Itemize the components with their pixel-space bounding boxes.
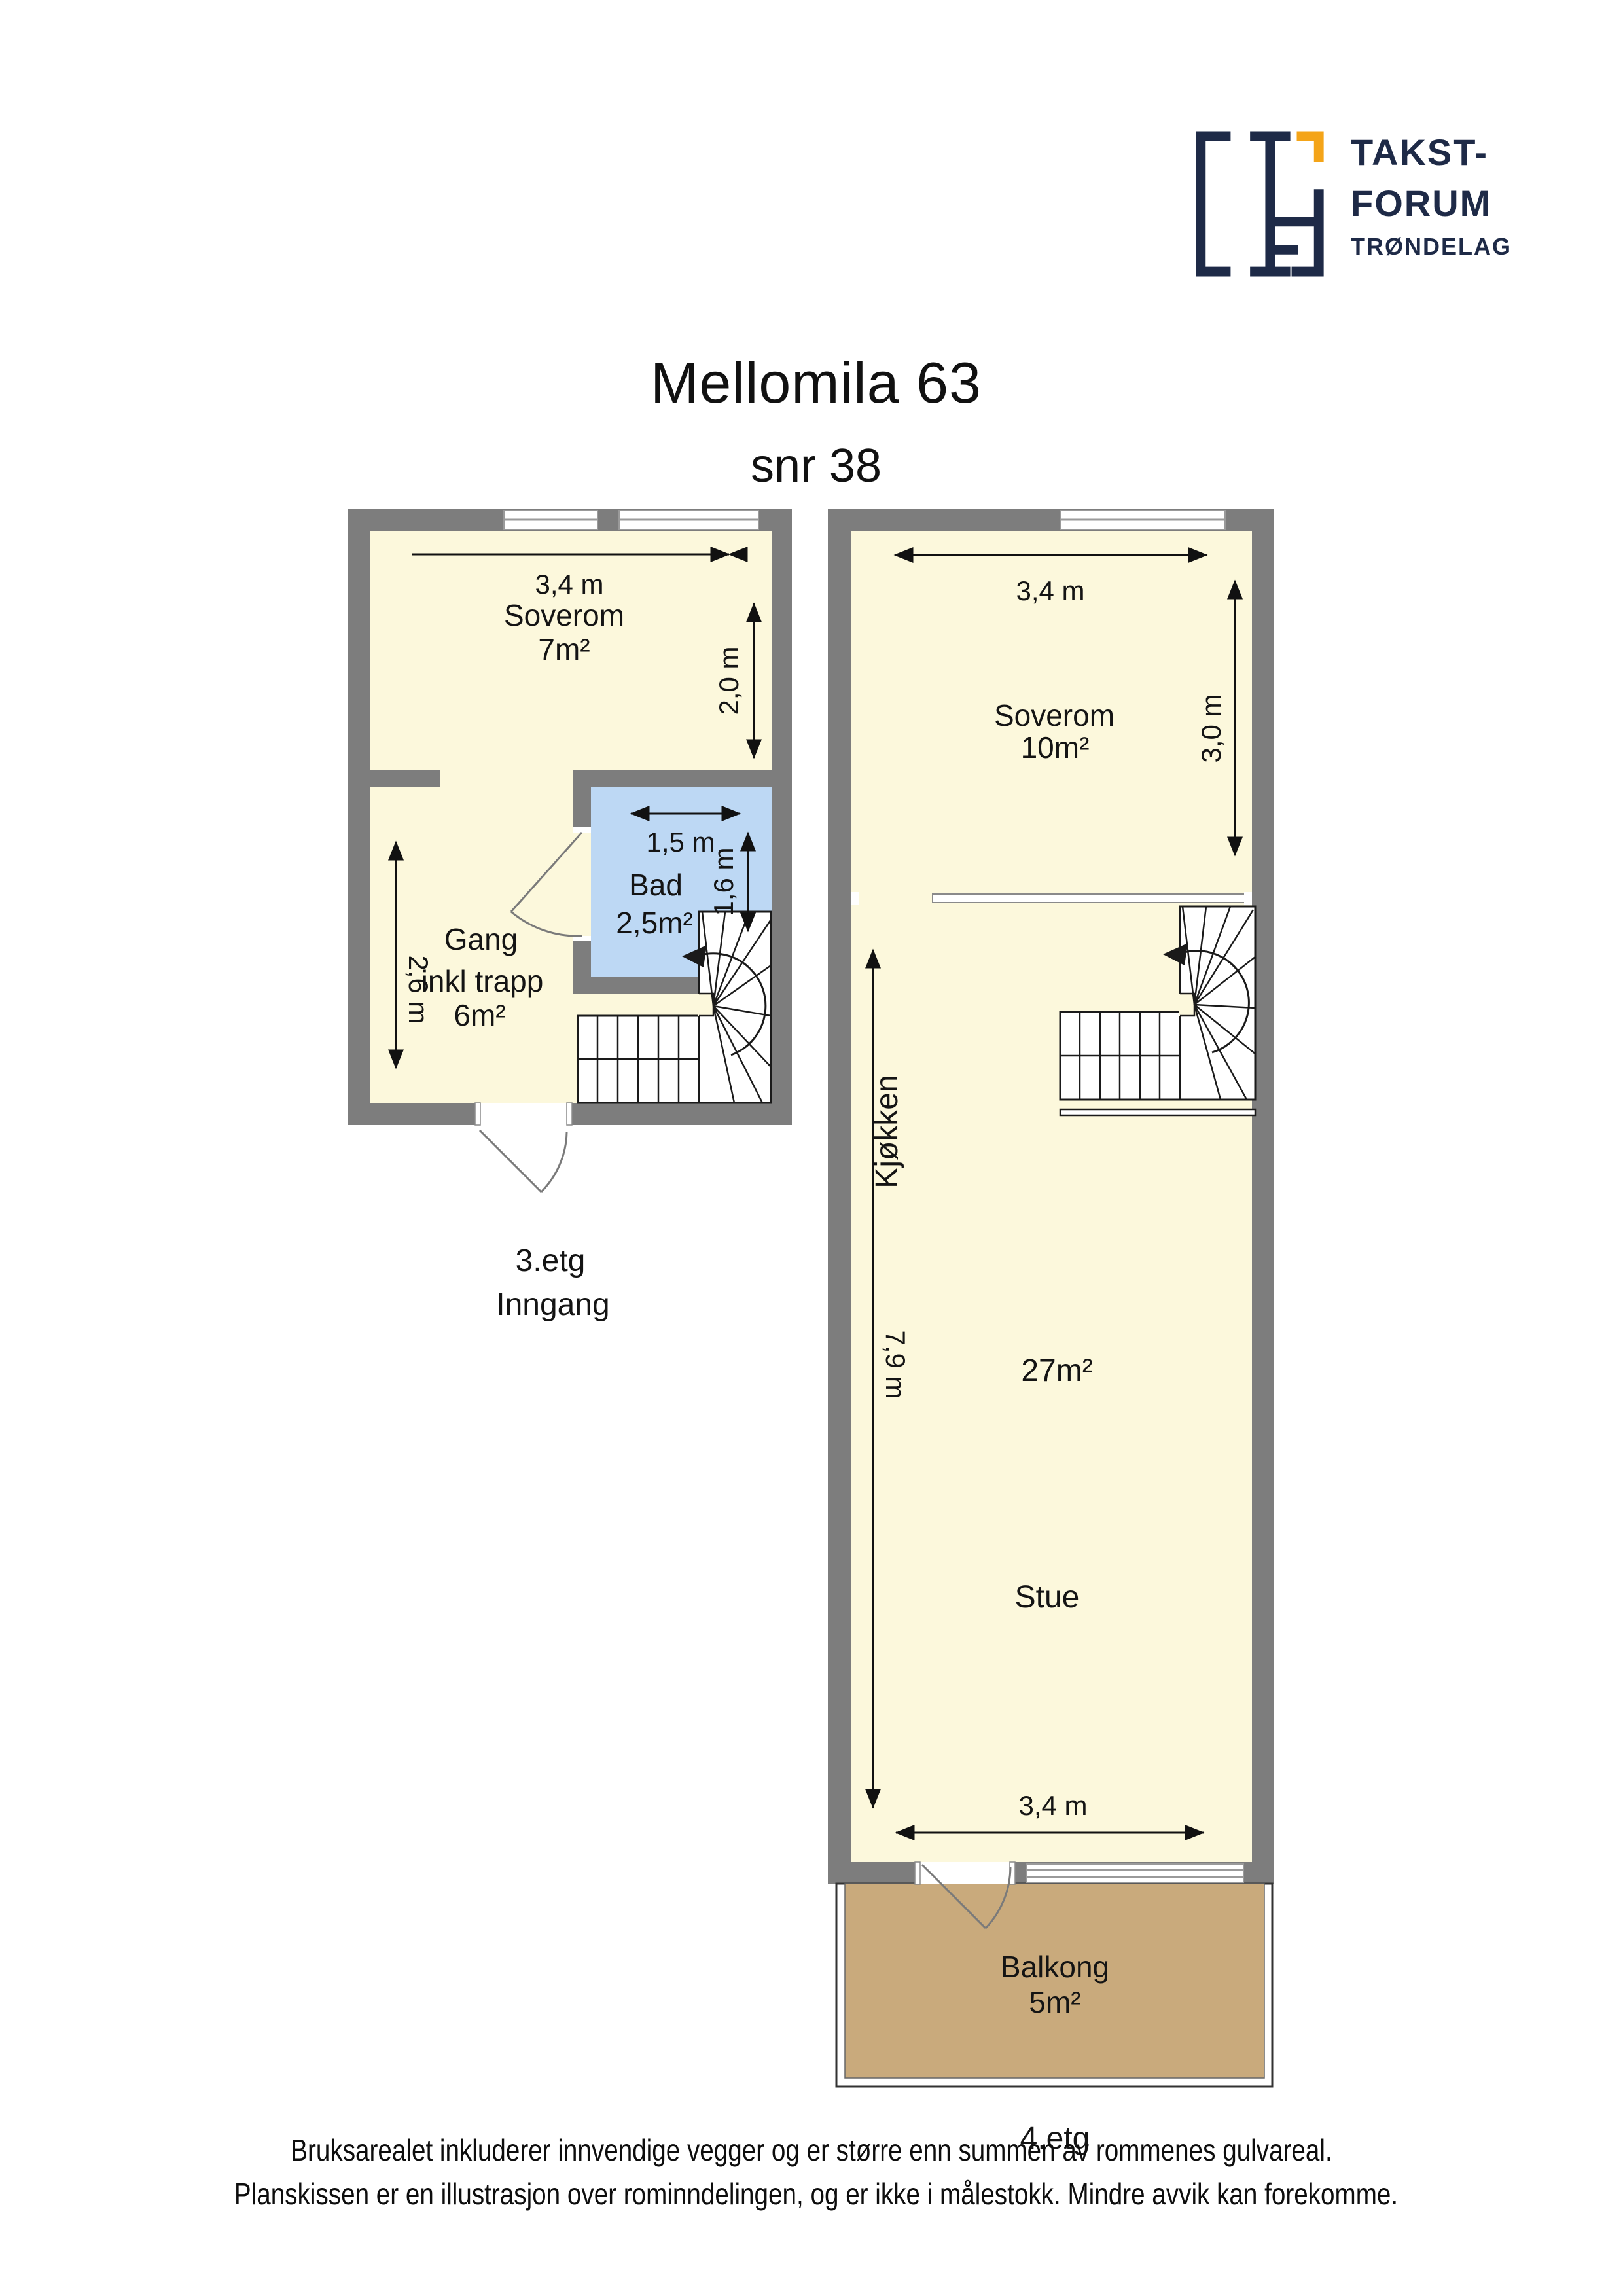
takstforum-logo-text: TAKST- FORUM TRØNDELAG <box>1351 131 1512 260</box>
takstforum-logo: TAKST- FORUM TRØNDELAG <box>1195 131 1512 277</box>
footer-disclaimer-2: Planskissen er en illustrasjon over romi… <box>234 2176 1398 2212</box>
dim-4etg-bottom: 3,4 m <box>1018 1792 1087 1820</box>
page-subtitle: snr 38 <box>751 439 882 493</box>
dim-3etg-left: 2,6 m <box>404 955 432 1024</box>
room-4etg-stue: Stue <box>1015 1582 1080 1613</box>
room-3etg-soverom-area: 7m² <box>538 634 590 664</box>
logo-line-takst: TAKST- <box>1351 131 1512 173</box>
dim-3etg-bad-width: 1,5 m <box>646 829 715 856</box>
floor-sublabel-3etg: Inngang <box>496 1289 610 1321</box>
footer-disclaimer-1: Bruksarealet inkluderer innvendige vegge… <box>291 2132 1332 2168</box>
dim-4etg-right: 3,0 m <box>1198 694 1225 762</box>
room-3etg-soverom: Soverom <box>504 600 624 630</box>
page-title: Mellomila 63 <box>651 350 982 416</box>
logo-line-trondelag: TRØNDELAG <box>1351 233 1512 260</box>
dim-3etg-bad-height: 1,6 m <box>710 847 738 916</box>
floor-label-3etg: 3.etg <box>516 1246 586 1277</box>
room-3etg-bad: Bad <box>629 870 683 900</box>
room-3etg-bad-area: 2,5m² <box>616 908 693 938</box>
takstforum-logo-icon <box>1195 131 1326 277</box>
room-4etg-balkong-area: 5m² <box>1029 1987 1080 2017</box>
room-4etg-soverom-area: 10m² <box>1021 732 1090 762</box>
room-4etg-soverom: Soverom <box>994 700 1115 730</box>
dim-3etg-top: 3,4 m <box>535 571 603 598</box>
dim-4etg-left: 7,9 m <box>882 1330 909 1399</box>
dim-3etg-right: 2,0 m <box>715 646 743 715</box>
room-4etg-balkong: Balkong <box>1001 1952 1109 1982</box>
dim-4etg-top: 3,4 m <box>1016 577 1084 605</box>
room-3etg-gang-area: 6m² <box>454 1000 505 1030</box>
room-3etg-gang: Gang <box>444 924 518 954</box>
room-4etg-kjokken: Kjøkken <box>872 1075 903 1188</box>
floor-plan-drawing <box>0 0 1623 2296</box>
logo-line-forum: FORUM <box>1351 182 1512 224</box>
room-3etg-gang-line2: inkl trapp <box>421 966 544 996</box>
floorplan-page: TAKST- FORUM TRØNDELAG Mellomila 63 snr … <box>0 0 1623 2296</box>
room-4etg-stue-area: 27m² <box>1021 1355 1092 1387</box>
